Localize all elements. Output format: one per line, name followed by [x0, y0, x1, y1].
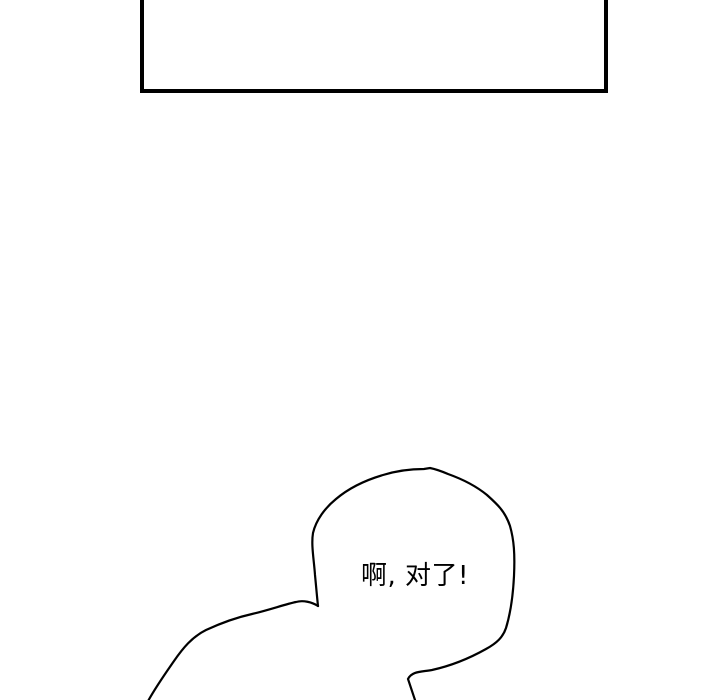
speech-bubble-text: 啊, 对了! — [353, 561, 477, 593]
comic-page: 啊, 对了! — [0, 0, 720, 700]
character-head-outline — [147, 601, 318, 700]
comic-artwork — [0, 0, 720, 700]
panel-border — [142, 0, 606, 91]
